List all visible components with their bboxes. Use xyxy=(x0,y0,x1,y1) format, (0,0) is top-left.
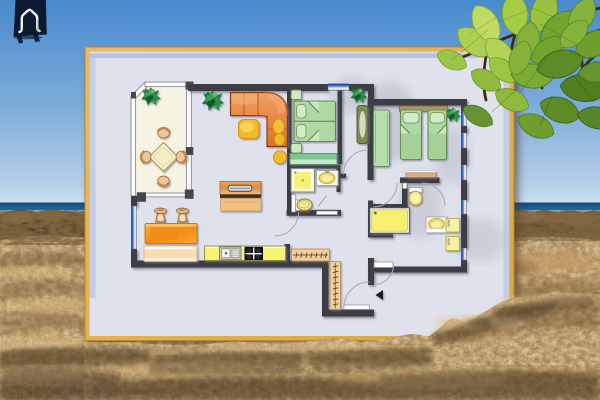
svg-text:WM: WM xyxy=(446,220,451,227)
svg-text:WM: WM xyxy=(446,238,451,245)
